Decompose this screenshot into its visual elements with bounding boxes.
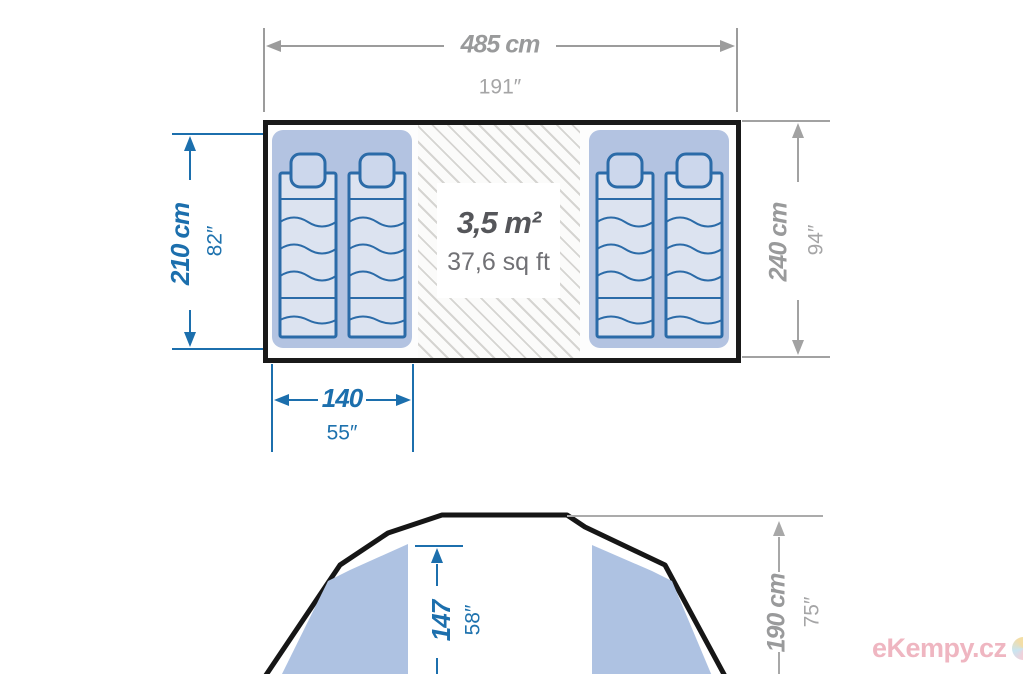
overall-depth-imperial-label: 94″	[806, 225, 827, 256]
arrowhead-up-icon	[792, 123, 804, 138]
bedroom-width-imperial-label: 55″	[327, 423, 358, 444]
peak-height-metric-label: 190 cm	[765, 574, 790, 653]
arrowhead-down-icon	[184, 332, 196, 347]
living-area-imperial: 37,6 sq ft	[447, 248, 550, 277]
tent-front-view	[264, 515, 823, 674]
overall-depth-metric-label: 240 cm	[767, 203, 792, 282]
beachball-logo-icon	[1012, 637, 1023, 660]
pillow-icon	[677, 154, 711, 187]
living-area-label: 3,5 m² 37,6 sq ft	[437, 183, 560, 298]
inner-height-imperial-label: 58″	[463, 605, 484, 636]
arrowhead-right-icon	[396, 394, 411, 406]
watermark-text: eKempy.cz	[872, 633, 1007, 664]
sleeping-mat-icon	[277, 152, 339, 340]
watermark: eKempy.cz	[872, 633, 1023, 664]
sleeping-mat-icon	[594, 152, 656, 340]
pillow-icon	[360, 154, 394, 187]
peak-height-imperial-label: 75″	[802, 597, 823, 628]
sleeping-cabin-right	[589, 130, 729, 348]
floor-plan: 3,5 m² 37,6 sq ft	[263, 120, 741, 363]
arrowhead-left-icon	[274, 394, 289, 406]
living-area-metric: 3,5 m²	[457, 205, 541, 241]
bedroom-depth-metric-label: 210 cm	[167, 203, 193, 285]
bedroom-width-metric-label: 140	[322, 385, 362, 411]
arrowhead-up-icon	[184, 136, 196, 151]
arrowhead-up-icon	[773, 521, 785, 536]
arrowhead-down-icon	[792, 340, 804, 355]
sleeping-cabin-left	[272, 130, 412, 348]
arrowhead-right-icon	[720, 40, 735, 52]
sleeping-mat-icon	[346, 152, 408, 340]
inner-height-metric-label: 147	[428, 601, 454, 641]
overall-width-metric-label: 485 cm	[461, 33, 540, 58]
pillow-icon	[291, 154, 325, 187]
overall-width-imperial-label: 191″	[479, 77, 521, 98]
arrowhead-left-icon	[266, 40, 281, 52]
tent-dimensions-diagram: 3,5 m² 37,6 sq ft 485 cm	[0, 0, 1023, 674]
sleeping-mat-icon	[663, 152, 725, 340]
bedroom-depth-imperial-label: 82″	[205, 226, 226, 257]
pillow-icon	[608, 154, 642, 187]
